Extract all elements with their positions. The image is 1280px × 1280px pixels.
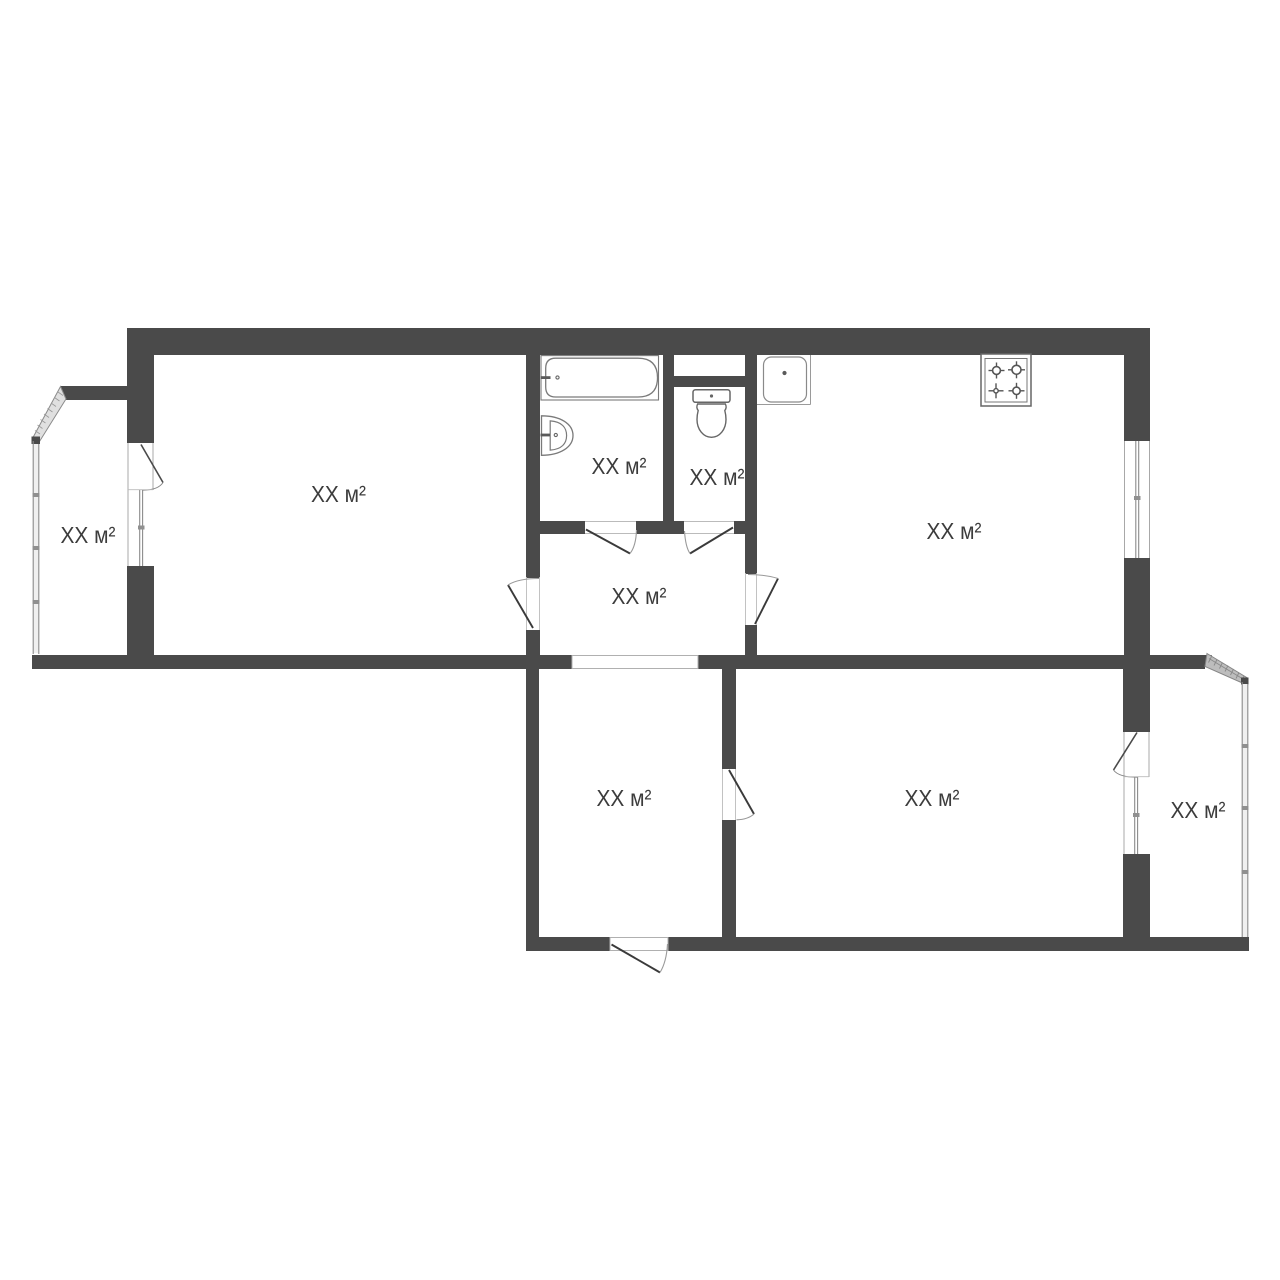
svg-text:XX м²: XX м² — [612, 583, 667, 609]
svg-text:XX м²: XX м² — [592, 453, 647, 479]
svg-text:XX м²: XX м² — [690, 464, 745, 490]
svg-text:XX м²: XX м² — [905, 785, 960, 811]
svg-text:XX м²: XX м² — [311, 481, 366, 507]
svg-text:XX м²: XX м² — [1171, 797, 1226, 823]
svg-text:XX м²: XX м² — [597, 785, 652, 811]
svg-text:XX м²: XX м² — [61, 522, 116, 548]
svg-text:XX м²: XX м² — [927, 518, 982, 544]
